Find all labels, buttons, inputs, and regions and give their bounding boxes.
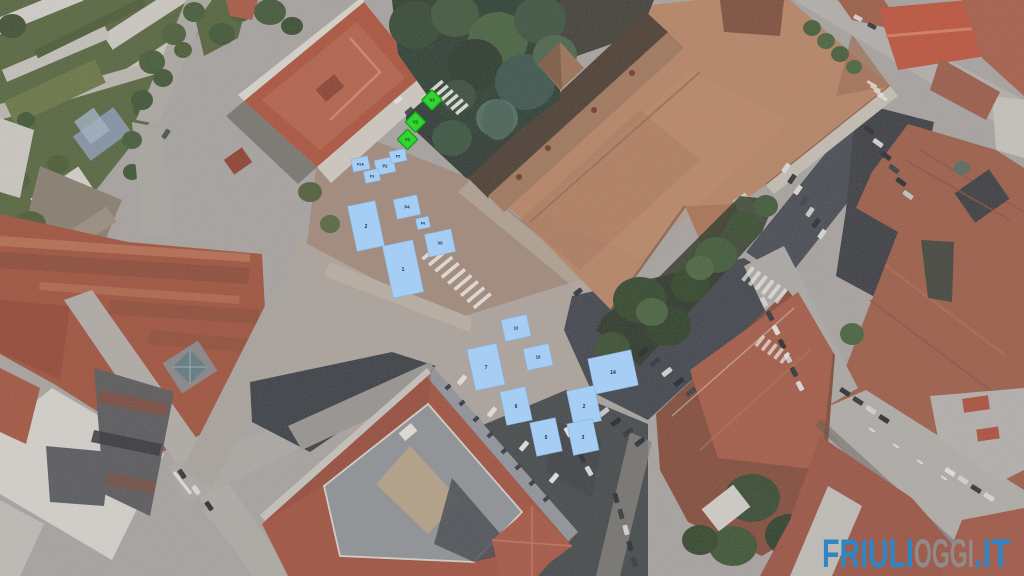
svg-text:7: 7 [485,365,488,371]
svg-text:V0: V0 [437,241,443,246]
svg-text:.IT: .IT [974,532,1010,576]
svg-text:1: 1 [402,267,405,273]
svg-text:P5: P5 [396,154,400,158]
svg-text:10: 10 [514,326,519,331]
svg-text:P6: P6 [421,221,425,225]
svg-text:2: 2 [365,224,368,230]
svg-text:V1: V1 [405,137,411,142]
svg-text:FRIULI: FRIULI [822,532,914,576]
svg-text:14: 14 [610,370,616,376]
svg-text:OGGI: OGGI [914,532,974,576]
svg-text:19: 19 [536,355,541,360]
svg-text:P2: P2 [382,164,388,169]
svg-text:V3: V3 [429,98,435,103]
svg-text:5: 5 [545,435,548,441]
svg-text:6: 6 [515,404,518,410]
svg-text:V2: V2 [413,120,419,125]
svg-text:P2A: P2A [357,162,364,166]
svg-text:P4: P4 [404,205,410,210]
svg-text:P3: P3 [370,174,374,178]
svg-text:2: 2 [583,404,586,410]
svg-text:3: 3 [582,435,585,441]
